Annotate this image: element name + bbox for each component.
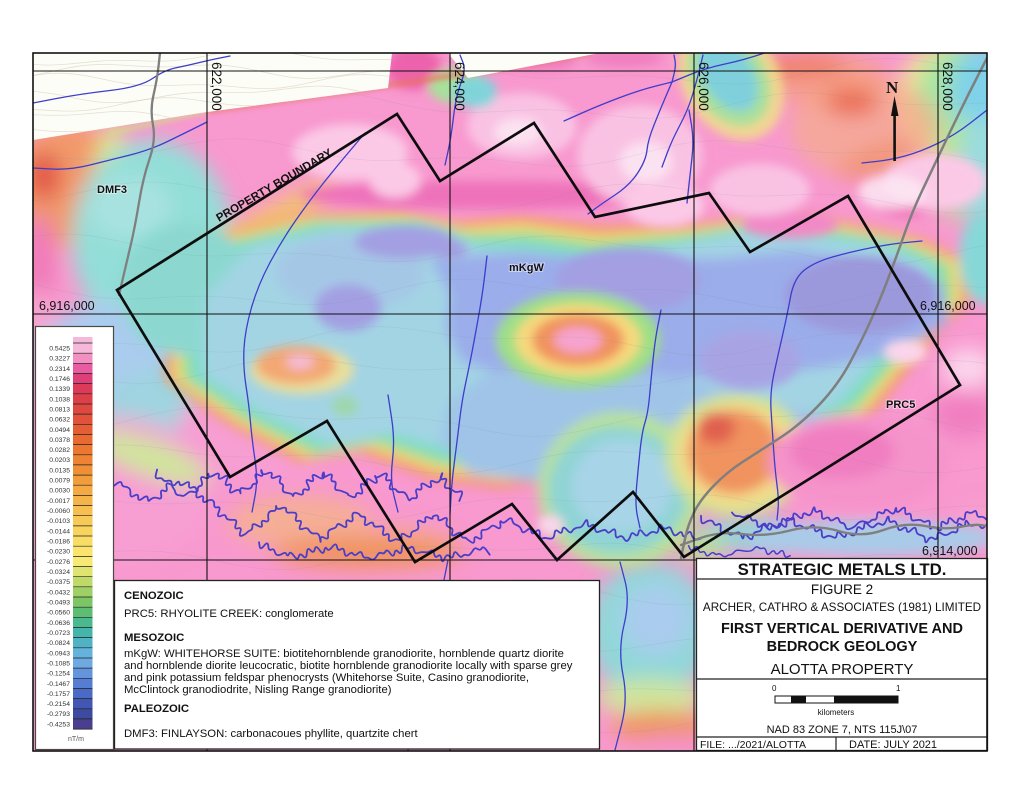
svg-text:6,916,000: 6,916,000 (920, 299, 976, 313)
svg-text:MESOZOIC: MESOZOIC (124, 632, 184, 644)
svg-text:-0.2154: -0.2154 (47, 701, 70, 708)
svg-text:-0.1757: -0.1757 (47, 691, 70, 698)
svg-text:CENOZOIC: CENOZOIC (124, 590, 184, 602)
svg-text:-0.0375: -0.0375 (47, 579, 70, 586)
svg-text:-0.4253: -0.4253 (47, 721, 70, 728)
svg-text:0.1746: 0.1746 (49, 376, 70, 383)
svg-text:0.0494: 0.0494 (49, 427, 70, 434)
svg-text:1: 1 (896, 684, 901, 693)
svg-text:-0.0103: -0.0103 (47, 518, 70, 525)
svg-text:-0.0636: -0.0636 (47, 620, 70, 627)
svg-text:0.0203: 0.0203 (49, 457, 70, 464)
svg-text:0.0030: 0.0030 (49, 488, 70, 495)
svg-text:-0.0276: -0.0276 (47, 559, 70, 566)
svg-text:622,000: 622,000 (209, 62, 224, 111)
svg-text:0.3227: 0.3227 (49, 356, 70, 363)
svg-text:N: N (886, 78, 899, 97)
svg-text:0.0632: 0.0632 (49, 417, 70, 424)
svg-text:-0.0060: -0.0060 (47, 508, 70, 515)
svg-text:McClintock granodiodrite, Nisl: McClintock granodiodrite, Nisling Range … (124, 684, 392, 696)
svg-text:-0.0824: -0.0824 (47, 640, 70, 647)
svg-text:-0.0230: -0.0230 (47, 549, 70, 556)
svg-text:PRC5: PRC5 (886, 399, 915, 411)
svg-text:DATE: JULY 2021: DATE: JULY 2021 (849, 739, 937, 751)
svg-text:NAD 83 ZONE 7, NTS 115J\07: NAD 83 ZONE 7, NTS 115J\07 (767, 724, 918, 736)
svg-text:-0.0723: -0.0723 (47, 630, 70, 637)
svg-text:-0.1467: -0.1467 (47, 681, 70, 688)
svg-text:0.0135: 0.0135 (49, 467, 70, 474)
svg-text:-0.0560: -0.0560 (47, 610, 70, 617)
svg-text:-0.0186: -0.0186 (47, 539, 70, 546)
svg-text:-0.0493: -0.0493 (47, 600, 70, 607)
svg-text:ARCHER, CATHRO & ASSOCIATES (1: ARCHER, CATHRO & ASSOCIATES (1981) LIMIT… (703, 601, 981, 614)
svg-text:and hornblende diorite leucocr: and hornblende diorite leucocratic, biot… (124, 660, 573, 672)
svg-text:BEDROCK GEOLOGY: BEDROCK GEOLOGY (767, 639, 918, 655)
svg-text:PRC5: RHYOLITE CREEK: conglome: PRC5: RHYOLITE CREEK: conglomerate (124, 608, 334, 620)
svg-text:0.0813: 0.0813 (49, 406, 70, 413)
svg-text:PALEOZOIC: PALEOZOIC (124, 703, 189, 715)
svg-text:6,916,000: 6,916,000 (39, 299, 95, 313)
svg-text:kilometers: kilometers (818, 708, 854, 717)
svg-text:-0.0943: -0.0943 (47, 650, 70, 657)
svg-text:FILE: .../2021/ALOTTA: FILE: .../2021/ALOTTA (700, 739, 806, 751)
svg-text:-0.0144: -0.0144 (47, 528, 70, 535)
svg-text:FIRST VERTICAL DERIVATIVE AND: FIRST VERTICAL DERIVATIVE AND (721, 621, 963, 637)
svg-text:-0.0324: -0.0324 (47, 569, 70, 576)
svg-text:0.0282: 0.0282 (49, 447, 70, 454)
svg-text:0.2314: 0.2314 (49, 366, 70, 373)
svg-text:0.5425: 0.5425 (49, 346, 70, 353)
svg-text:624,000: 624,000 (452, 62, 467, 111)
svg-text:-0.0432: -0.0432 (47, 589, 70, 596)
svg-text:626,000: 626,000 (696, 62, 711, 111)
svg-text:0.0378: 0.0378 (49, 437, 70, 444)
svg-text:FIGURE 2: FIGURE 2 (811, 582, 873, 597)
svg-text:0.1038: 0.1038 (49, 396, 70, 403)
svg-text:0.1339: 0.1339 (49, 386, 70, 393)
svg-text:DMF3: FINLAYSON: carbonacoues: DMF3: FINLAYSON: carbonacoues phyllite, … (124, 728, 418, 740)
svg-text:-0.0017: -0.0017 (47, 498, 70, 505)
svg-text:mKgW: WHITEHORSE SUITE: biotit: mKgW: WHITEHORSE SUITE: biotitehornblend… (124, 648, 564, 660)
svg-text:-0.1085: -0.1085 (47, 660, 70, 667)
svg-text:0.0079: 0.0079 (49, 478, 70, 485)
svg-text:and pink potassium feldspar ph: and pink potassium feldspar phenocrysts … (124, 672, 529, 684)
svg-text:nT/m: nT/m (68, 736, 84, 743)
svg-text:STRATEGIC METALS LTD.: STRATEGIC METALS LTD. (738, 560, 947, 579)
svg-text:mKgW: mKgW (509, 262, 544, 274)
svg-text:0: 0 (772, 684, 777, 693)
svg-text:-0.2793: -0.2793 (47, 711, 70, 718)
svg-text:628,000: 628,000 (940, 62, 955, 111)
svg-text:DMF3: DMF3 (97, 184, 127, 196)
svg-text:6,914,000: 6,914,000 (922, 544, 978, 558)
svg-text:-0.1254: -0.1254 (47, 671, 70, 678)
svg-text:ALOTTA PROPERTY: ALOTTA PROPERTY (771, 661, 914, 678)
